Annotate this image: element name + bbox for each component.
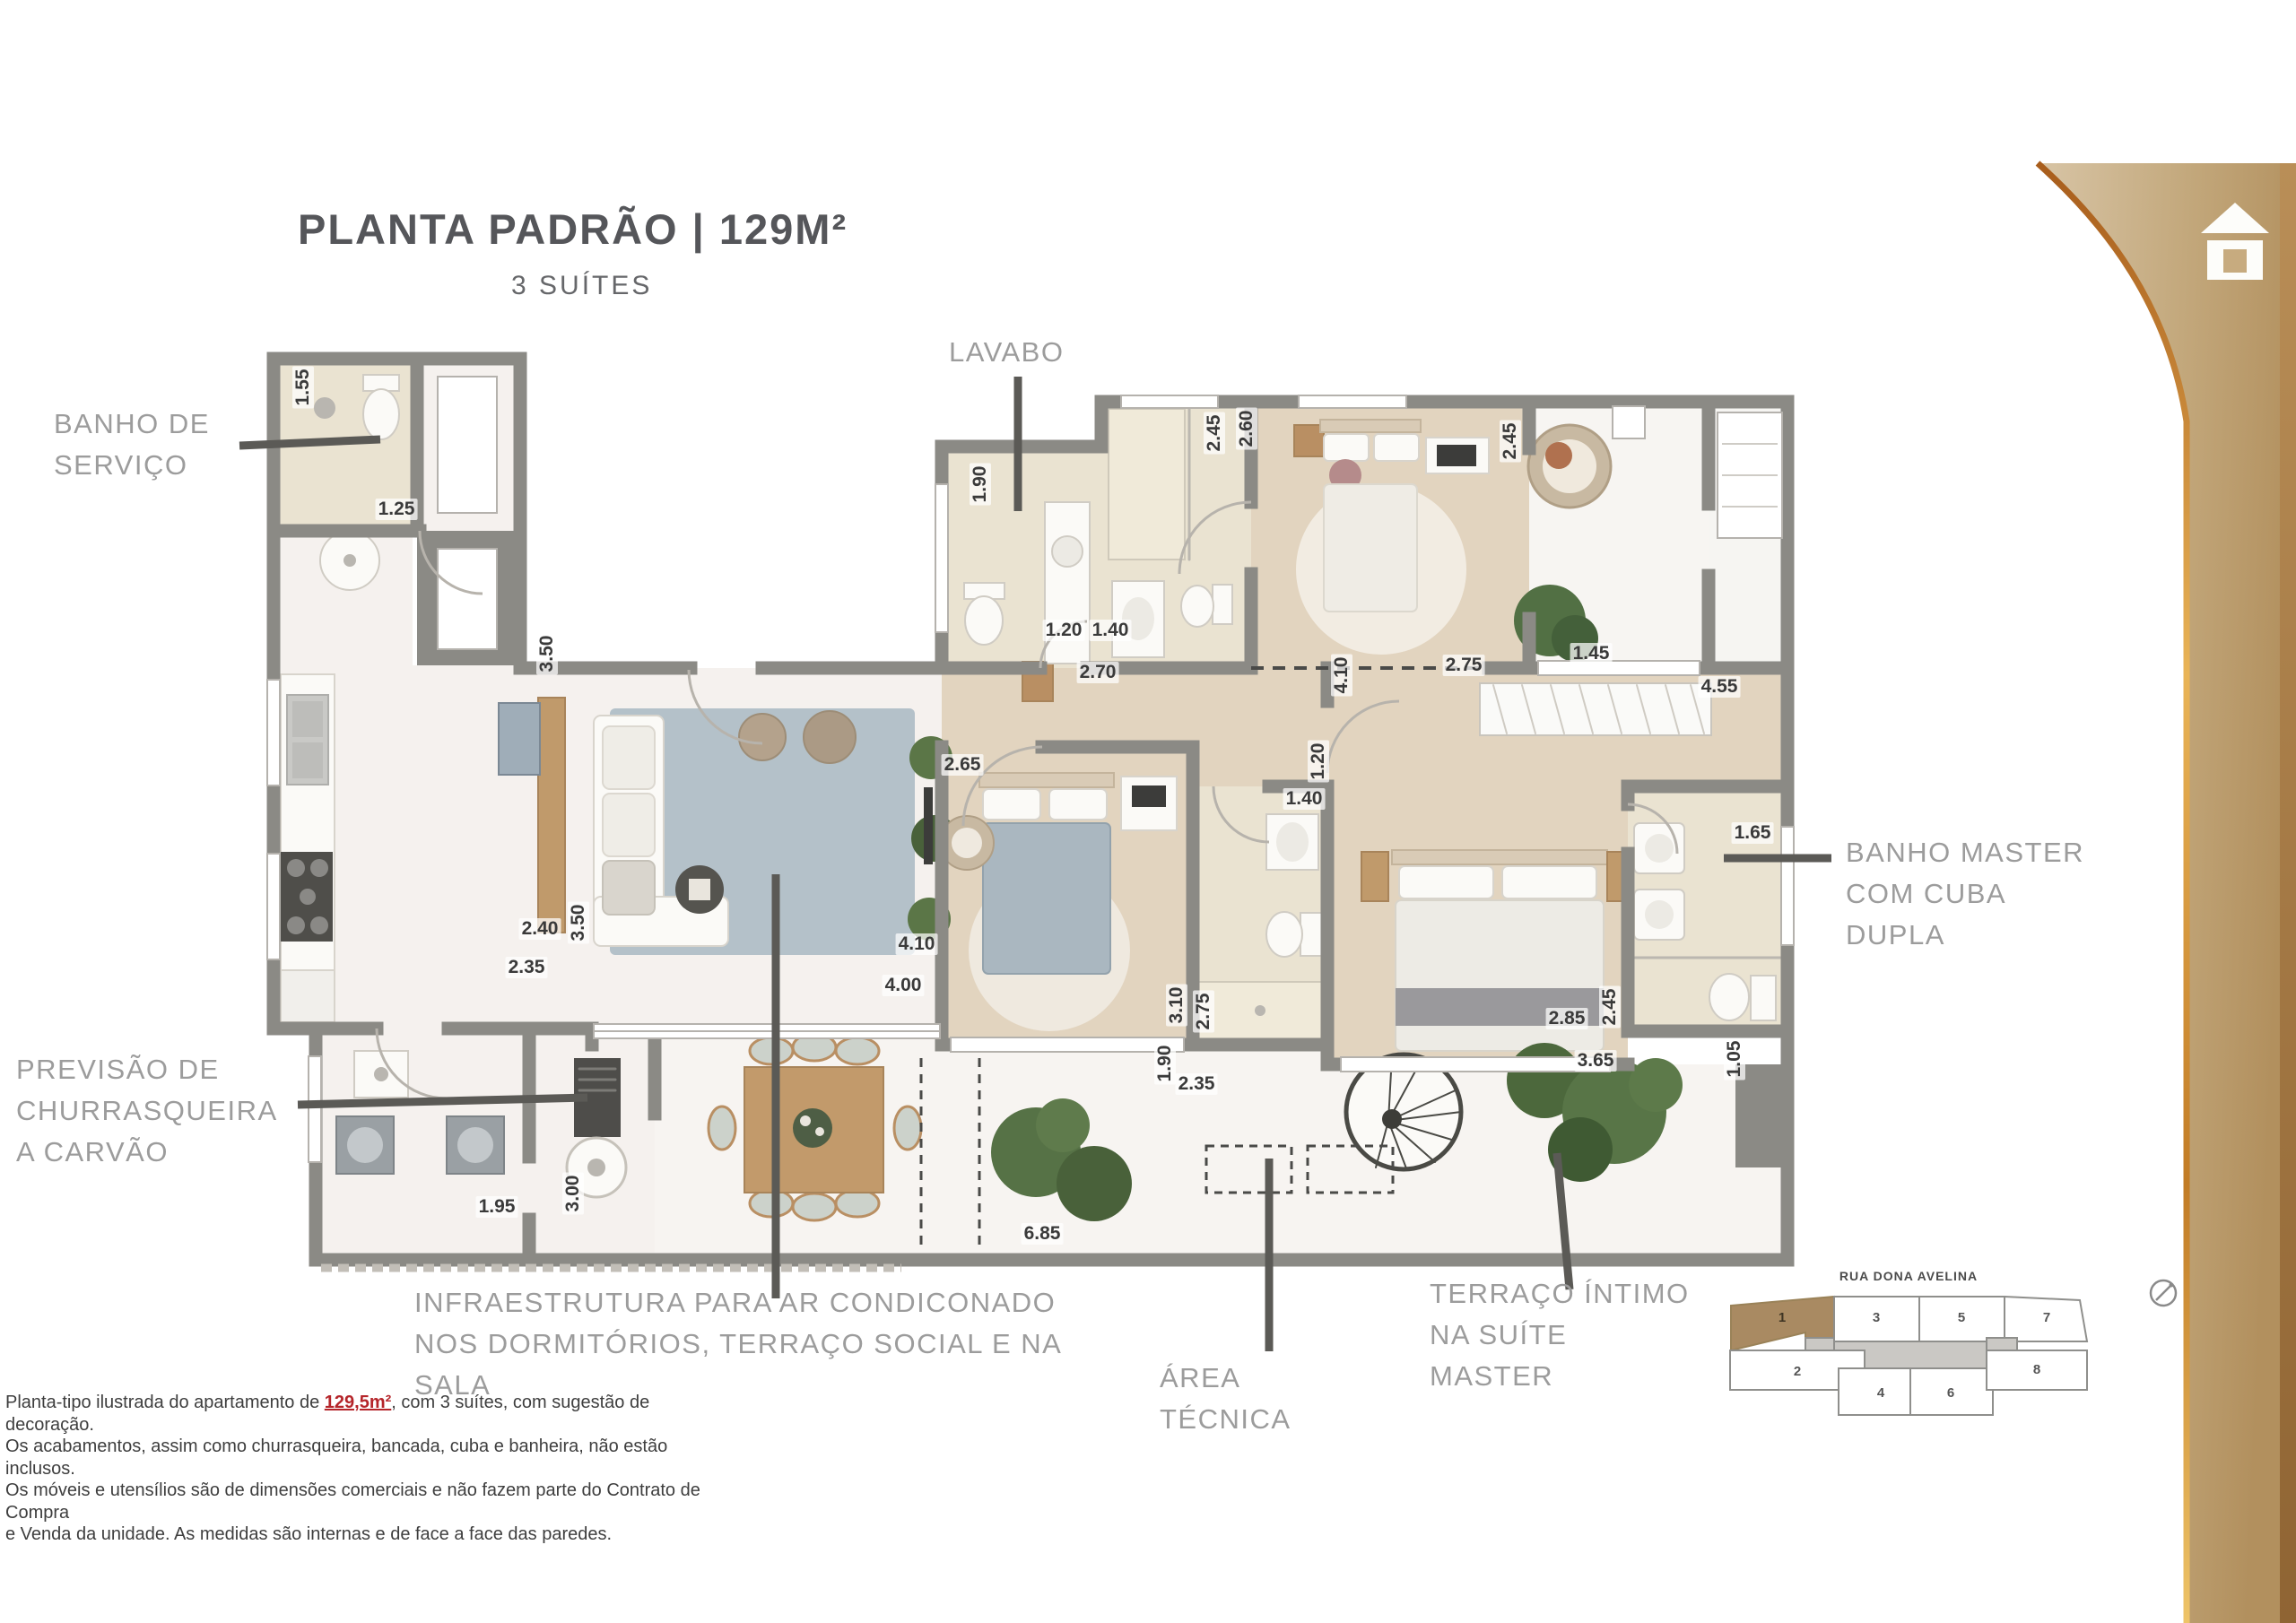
floor-plan-page: PLANTA PADRÃO | 129M² 3 SUÍTES BANHO DES…: [0, 0, 2296, 1623]
dimension-label: 2.65: [942, 754, 984, 776]
dimension-label: 1.65: [1732, 822, 1774, 844]
keyplan-unit-3-label: 3: [1873, 1310, 1880, 1325]
tv: [499, 703, 540, 775]
page-title: PLANTA PADRÃO | 129M²: [298, 204, 848, 254]
pouf: [804, 711, 856, 763]
dimension-label: 2.35: [506, 957, 548, 978]
pouf: [739, 714, 786, 760]
banho-master-label: BANHO MASTERCOM CUBADUPLA: [1846, 832, 2084, 956]
dimension-label: 1.90: [1154, 1043, 1176, 1085]
dimension-label: 6.85: [1022, 1223, 1064, 1245]
compass-icon: [2151, 1280, 2176, 1306]
keyplan-unit-4-label: 4: [1877, 1385, 1885, 1401]
keyplan-unit-1-label: 1: [1779, 1310, 1786, 1325]
banho-servico-label: BANHO DESERVIÇO: [54, 404, 210, 486]
kitchen-fixtures: [281, 674, 335, 1022]
disclaimer-line-1: Planta-tipo ilustrada do apartamento de …: [5, 1392, 723, 1436]
keyplan-unit-7-label: 7: [2043, 1310, 2050, 1325]
infraestrutura-label: INFRAESTRUTURA PARA AR CONDICONADONOS DO…: [414, 1282, 1062, 1406]
dimension-label: 4.00: [883, 975, 925, 996]
dimension-label: 2.35: [1176, 1073, 1218, 1095]
dimension-label: 3.50: [568, 902, 589, 944]
terraco-intimo-label: TERRAÇO ÍNTIMONA SUÍTEMASTER: [1430, 1273, 1690, 1397]
dimension-label: 4.55: [1699, 676, 1741, 698]
dimension-label: 3.00: [562, 1173, 584, 1215]
dimension-label: 2.45: [1204, 412, 1225, 455]
dimension-label: 4.10: [896, 933, 938, 955]
keyplan-unit-8-label: 8: [2033, 1362, 2040, 1377]
dimension-label: 3.50: [536, 633, 558, 675]
disclaimer-line-3: Os móveis e utensílios são de dimensões …: [5, 1480, 723, 1523]
dimension-label: 2.45: [1500, 421, 1521, 463]
dimension-label: 2.40: [519, 918, 561, 940]
dimension-label: 2.45: [1599, 986, 1621, 1028]
tv-panel: [538, 698, 565, 933]
keyplan: RUA DONA AVELINA 1 3 5 7 2 4 6 8: [1718, 1263, 2193, 1430]
dimension-label: 3.65: [1575, 1050, 1617, 1072]
dimension-label: 1.40: [1283, 788, 1326, 810]
dimension-label: 1.40: [1090, 620, 1132, 641]
lavabo-label: LAVABO: [949, 332, 1064, 373]
dimension-label: 1.45: [1570, 643, 1613, 664]
dimension-label: 3.10: [1166, 985, 1187, 1027]
dimension-label: 2.75: [1443, 655, 1485, 676]
churrasqueira-label: PREVISÃO DECHURRASQUEIRAA CARVÃO: [16, 1049, 278, 1173]
dimension-label: 2.70: [1077, 662, 1119, 683]
dimension-label: 1.20: [1043, 620, 1085, 641]
dimension-label: 2.85: [1546, 1008, 1588, 1029]
keyplan-unit-2-label: 2: [1794, 1364, 1801, 1379]
dimension-label: 1.25: [376, 499, 418, 520]
disclaimer-text: Planta-tipo ilustrada do apartamento de …: [5, 1392, 723, 1546]
dimension-label: 1.55: [292, 367, 314, 409]
dimension-label: 4.10: [1331, 655, 1352, 697]
dimension-label: 2.60: [1236, 408, 1257, 450]
keyplan-street-label: RUA DONA AVELINA: [1839, 1269, 1978, 1283]
keyplan-unit-5-label: 5: [1958, 1310, 1965, 1325]
dimension-label: 1.20: [1308, 741, 1329, 783]
area-tecnica-label: ÁREATÉCNICA: [1160, 1358, 1291, 1440]
disclaimer-line-2: Os acabamentos, assim como churrasqueira…: [5, 1436, 723, 1480]
dimension-label: 1.05: [1724, 1038, 1745, 1081]
keyplan-unit-6-label: 6: [1947, 1385, 1954, 1401]
page-subtitle: 3 SUÍTES: [511, 271, 652, 301]
dimension-label: 1.95: [476, 1196, 518, 1218]
disclaimer-line-4: e Venda da unidade. As medidas são inter…: [5, 1523, 723, 1546]
living-tv: [924, 787, 933, 864]
dimension-label: 2.75: [1193, 991, 1214, 1033]
dimension-label: 1.90: [970, 464, 991, 506]
area-highlight: 129,5m²: [325, 1393, 392, 1412]
master-wardrobe: [1480, 683, 1711, 735]
